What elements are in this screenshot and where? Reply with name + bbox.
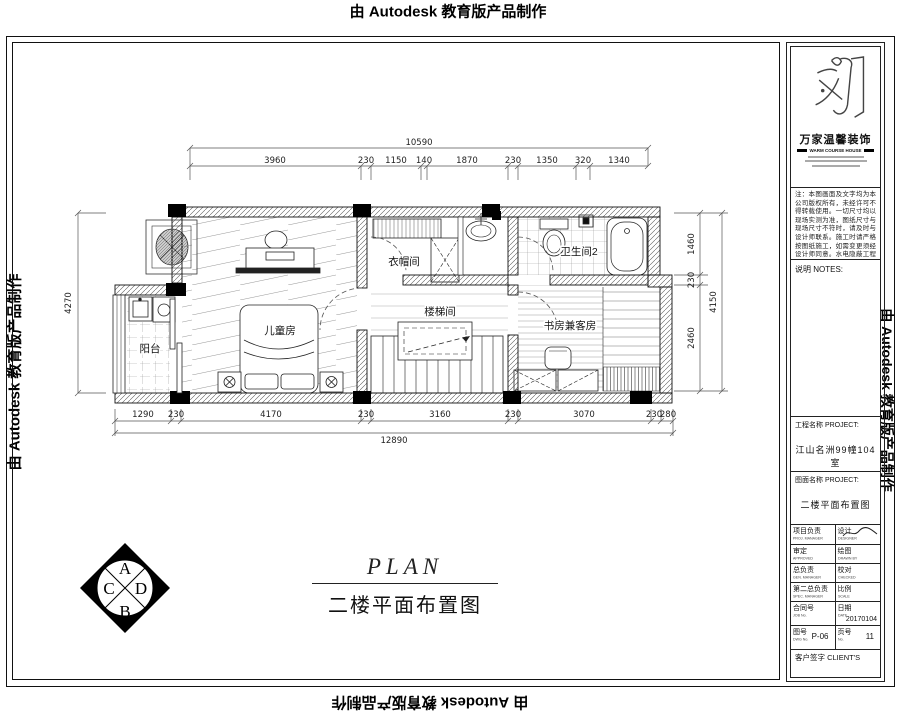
compass-letter-c: C [103, 579, 114, 598]
notes-paragraph: 注：本图画面及文字均为本公司版权所有，未经许可不得转载使用。一切尺寸均以现场实测… [791, 187, 880, 259]
company-address-line [805, 160, 867, 162]
cell-job-no: 合同号 [793, 603, 833, 613]
cell-spec-manager: 第二总负责 [793, 584, 833, 594]
drawing-sheet: 由 Autodesk 教育版产品制作 由 Autodesk 教育版产品制作 由 … [0, 0, 900, 720]
orientation-symbol: A D B C [78, 541, 172, 635]
caption-en: PLAN [310, 554, 500, 580]
company-name-en: WARM COURSE HOUSE [791, 148, 880, 153]
cell-approved: 审定 [793, 546, 833, 556]
compass-letter-b: B [119, 602, 130, 621]
pillow [281, 374, 314, 389]
drawing-name-box: 图面名称 PROJECT: 二楼平面布置图 [791, 471, 880, 524]
dim-top-2: 1150 [385, 156, 407, 166]
dim-left: 4270 [64, 292, 74, 314]
project-name-box: 工程名称 PROJECT: 江山名洲99幢104室 [791, 416, 880, 471]
title-block: 万家温馨装饰 WARM COURSE HOUSE 注：本图画面及文字均为本公司版… [786, 42, 885, 682]
cell-checked: 校对 [838, 565, 879, 575]
room-label-balcony: 阳台 [140, 342, 161, 355]
dim-bottom-5: 230 [505, 410, 521, 420]
dim-top-4: 1870 [456, 156, 478, 166]
dim-bottom-0: 1290 [132, 410, 154, 420]
designer-signature [841, 526, 879, 539]
cell-scale: 比例 [838, 584, 879, 594]
logo-bar [797, 149, 807, 152]
floor-plan: 10590 3960 230 1150 140 1870 230 1350 32… [55, 128, 765, 478]
client-signature-row: 客户签字 CLIENT'S [791, 649, 880, 665]
room-label-stair: 楼梯间 [424, 305, 456, 318]
logo-bar [864, 149, 874, 152]
caption-zh: 二楼平面布置图 [310, 589, 500, 618]
compass-letter-d: D [135, 579, 147, 598]
dim-right-1: 230 [687, 272, 697, 288]
sliding-door-panel [170, 299, 175, 349]
chair [545, 347, 571, 369]
dim-bottom-8: 280 [660, 410, 676, 420]
cell-drawn: 绘图 [838, 546, 879, 556]
cell-gen-manager: 总负责 [793, 565, 833, 575]
cell-proj-manager: 项目负责 [793, 526, 833, 536]
drawing-label: 图面名称 PROJECT: [791, 472, 880, 485]
dim-bottom-total: 12890 [380, 436, 407, 446]
dim-bottom-2: 4170 [260, 410, 282, 420]
dim-top-6: 1350 [536, 156, 558, 166]
company-logo-box: 万家温馨装饰 WARM COURSE HOUSE [791, 47, 880, 187]
dim-bottom-3: 230 [358, 410, 374, 420]
project-label: 工程名称 PROJECT: [791, 417, 880, 430]
room-label-study: 书房兼客房 [544, 319, 597, 332]
page-no-value: 11 [866, 632, 874, 641]
cell-date: 日期 [838, 603, 879, 613]
dwg-no-value: P-06 [812, 632, 829, 641]
watermark-top: 由 Autodesk 教育版产品制作 [350, 1, 547, 22]
wardrobe [373, 219, 441, 238]
dim-top-5: 230 [505, 156, 521, 166]
room-label-bath: 卫生间2 [560, 245, 597, 258]
dim-right-total: 4150 [709, 291, 719, 313]
project-value: 江山名洲99幢104室 [791, 443, 880, 469]
pillow [245, 374, 278, 389]
dim-top-0: 3960 [264, 156, 286, 166]
desk-chair [265, 231, 287, 249]
dim-bottom-4: 3160 [429, 410, 451, 420]
company-address-line [808, 156, 864, 158]
dim-bottom-1: 230 [168, 410, 184, 420]
company-address-line [812, 165, 860, 167]
tv-console [236, 268, 320, 273]
notes-box: 说明 NOTES: [791, 259, 880, 416]
room-label-cloak: 衣帽间 [388, 255, 420, 268]
dim-right-0: 1460 [687, 233, 697, 255]
sliding-door-panel [177, 343, 182, 393]
drawing-value: 二楼平面布置图 [791, 498, 880, 511]
date-value: 20170104 [846, 616, 877, 623]
dim-top-7: 320 [575, 156, 591, 166]
watermark-bottom: 由 Autodesk 教育版产品制作 [332, 693, 529, 714]
compass-letter-a: A [119, 559, 132, 578]
toilet-tank [540, 219, 568, 229]
dim-top-1: 230 [358, 156, 374, 166]
caption-rule [312, 583, 498, 584]
dim-right-2: 2460 [687, 327, 697, 349]
drawing-caption: PLAN 二楼平面布置图 [310, 554, 500, 618]
room-label-kids: 儿童房 [264, 324, 296, 337]
company-name: 万家温馨装饰 [791, 131, 880, 147]
signature-table: 项目负责PROJ. MANAGER 设计DESIGNER 审定APPROVED … [791, 524, 880, 677]
dim-bottom-6: 3070 [573, 410, 595, 420]
balcony-window [113, 295, 125, 393]
dim-top-3: 140 [416, 156, 432, 166]
notes-label: 说明 NOTES: [795, 265, 843, 274]
dim-top-total: 10590 [405, 138, 432, 148]
dim-top-8: 1340 [608, 156, 630, 166]
company-logo-icon [805, 51, 867, 125]
